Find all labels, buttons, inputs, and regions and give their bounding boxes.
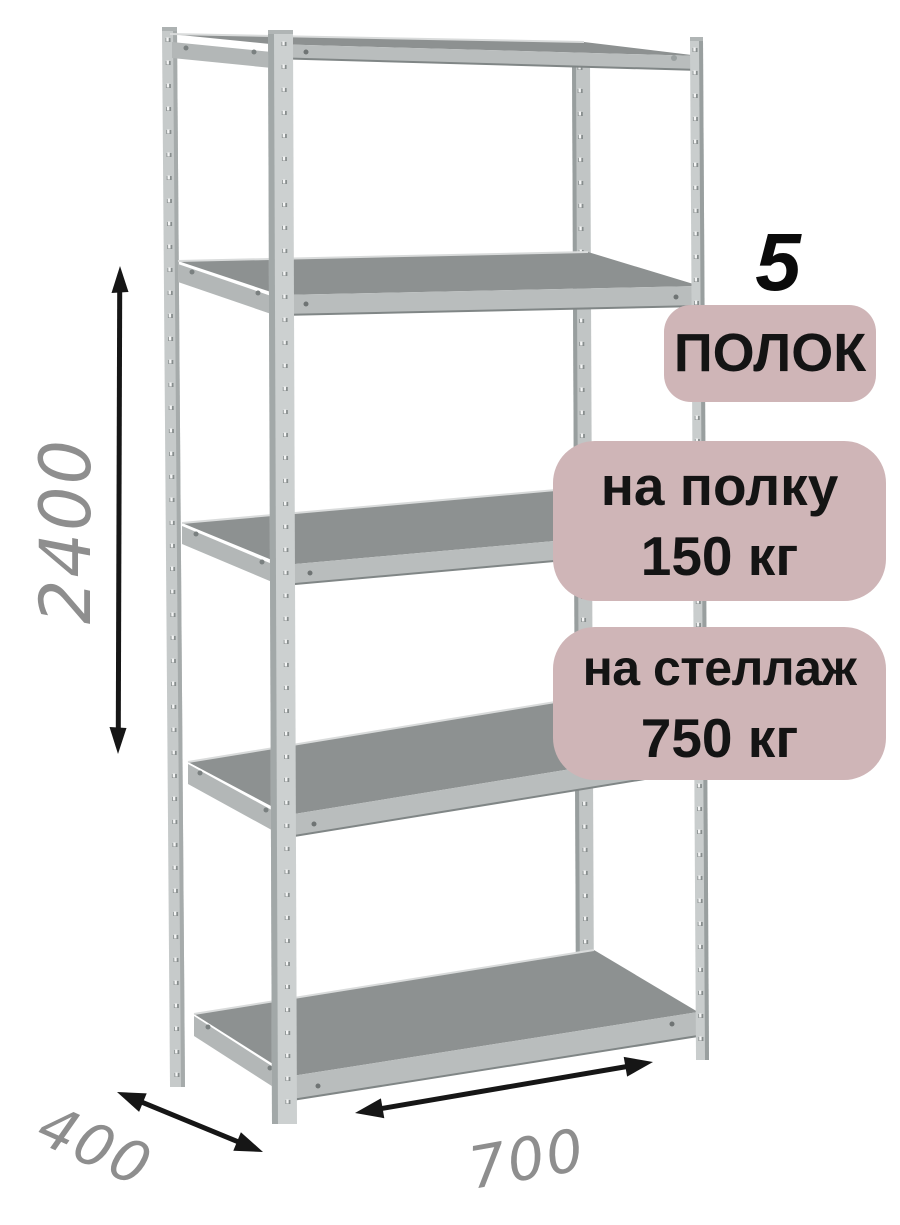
total-load-value: 750 кг	[553, 703, 886, 773]
shelf-2	[178, 252, 700, 317]
front-left-post	[268, 30, 297, 1124]
total-load-badge: на стеллаж 750 кг	[553, 627, 886, 780]
per-shelf-load-text: на полку	[553, 451, 886, 521]
shelf-count-number: 5	[716, 222, 840, 304]
shelf-5	[194, 950, 698, 1100]
total-load-text: на стеллаж	[553, 633, 886, 703]
per-shelf-load-badge: на полку 150 кг	[553, 441, 886, 601]
dimension-height-label: 2400	[21, 361, 111, 701]
back-left-post	[162, 27, 185, 1087]
shelf-1	[170, 34, 700, 70]
shelf-count-badge: ПОЛОК	[664, 305, 876, 402]
shelf-count-label: ПОЛОК	[674, 323, 866, 383]
per-shelf-load-value: 150 кг	[553, 521, 886, 591]
product-card: 2400 400 700 5 ПОЛОК на полку 150 кг на …	[0, 0, 900, 1200]
height-dimension-arrow	[110, 266, 129, 754]
